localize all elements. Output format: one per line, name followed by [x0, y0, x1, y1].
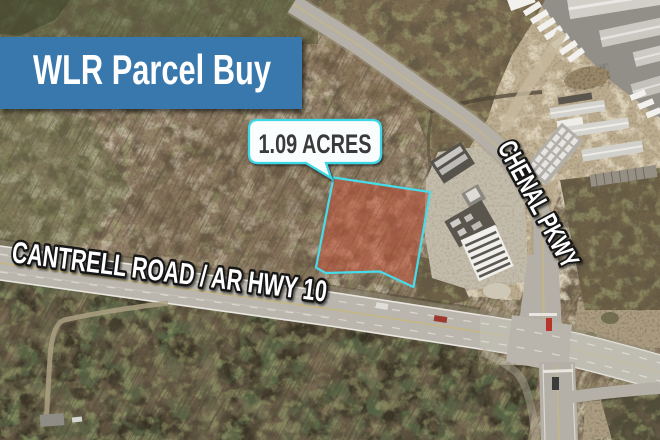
svg-text:WLR Parcel Buy: WLR Parcel Buy: [33, 46, 271, 93]
svg-text:1.09 ACRES: 1.09 ACRES: [259, 129, 372, 159]
